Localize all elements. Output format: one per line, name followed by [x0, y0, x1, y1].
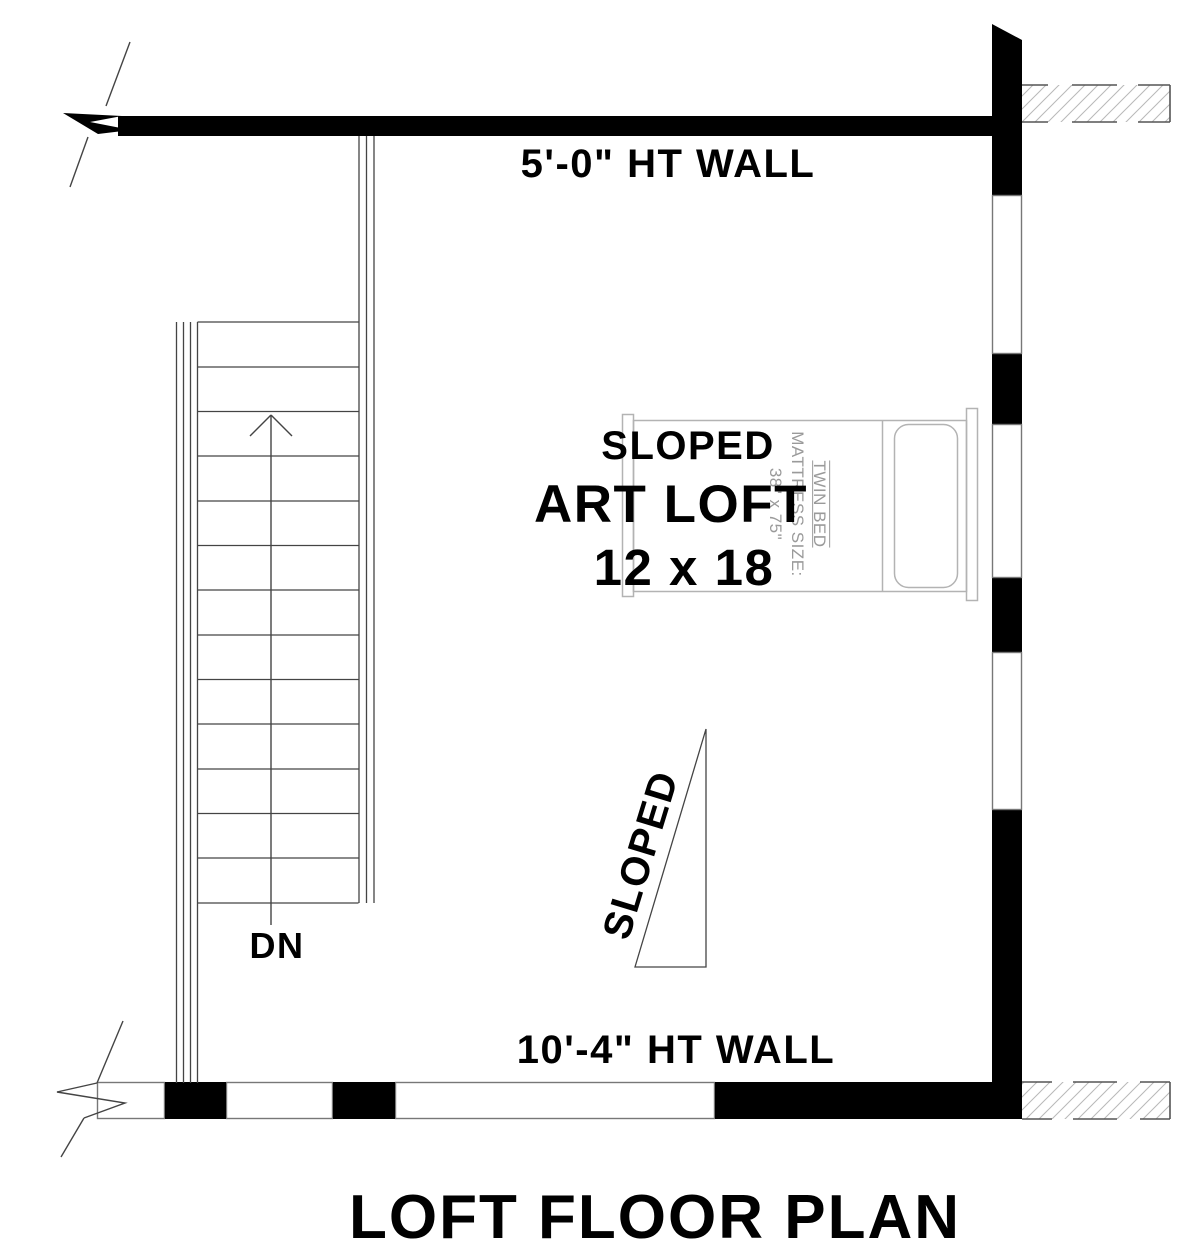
loft-floor-plan: TWIN BED MATTRESS SIZE: 38" x 75" 5'-0" …: [0, 0, 1200, 1257]
bed-label: TWIN BED: [808, 431, 830, 577]
bottom-wall-height-label: 10'-4" HT WALL: [517, 1028, 835, 1072]
room-sloped-label: SLOPED: [601, 424, 774, 468]
bottom-wall: [98, 1082, 993, 1119]
room-dimensions-label: 12 x 18: [594, 540, 775, 596]
right-wall: [992, 24, 1022, 1119]
top-wall: [63, 113, 992, 136]
top-wall-height-label: 5'-0" HT WALL: [521, 142, 816, 186]
hatched-wall-bottom-right: [1022, 1082, 1170, 1119]
room-name-label: ART LOFT: [534, 476, 808, 534]
stair-direction-arrow: [250, 415, 292, 925]
plan-title: LOFT FLOOR PLAN: [349, 1184, 961, 1252]
hatched-wall-top-right: [1022, 85, 1170, 122]
stair-direction-label: DN: [250, 926, 305, 966]
